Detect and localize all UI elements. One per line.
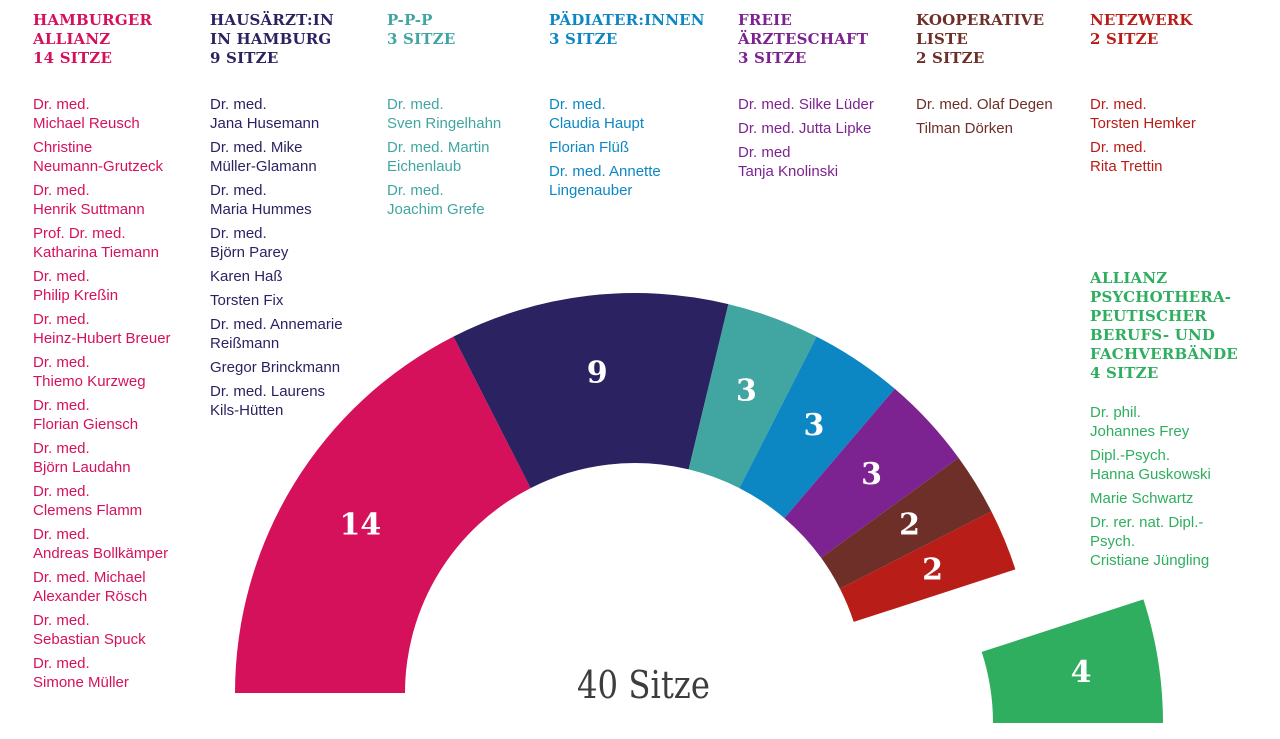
party-member-name: Dr. med. Jutta Lipke	[738, 119, 910, 138]
party-member-list: Dr. med. Michael ReuschChristine Neumann…	[33, 95, 205, 697]
party-header: PÄDIATER:INNEN 3 SITZE	[549, 11, 721, 49]
party-header: HAUSÄRZT:IN IN HAMBURG 9 SITZE	[210, 11, 382, 68]
chart-segment-3: 3	[739, 337, 894, 518]
chart-segment-7: 4	[982, 599, 1163, 723]
party-column-paediater-innen: PÄDIATER:INNEN 3 SITZE Dr. med. Claudia …	[549, 11, 721, 49]
segment-seat-count: 3	[736, 373, 757, 408]
party-member-name: Dr. med. Maria Hummes	[210, 181, 382, 219]
party-member-name: Dr. med. Sven Ringelhahn	[387, 95, 559, 133]
party-member-name: Dr. rer. nat. Dipl.- Psych. Cristiane Jü…	[1090, 513, 1250, 570]
chart-segment-4: 3	[784, 389, 958, 558]
party-member-name: Dr. med. Björn Parey	[210, 224, 382, 262]
segment-seat-count: 3	[861, 457, 882, 492]
party-member-name: Dr. med. Thiemo Kurzweg	[33, 353, 205, 391]
party-member-list: Dr. med. Claudia HauptFlorian FlüßDr. me…	[549, 95, 721, 205]
chart-segment-6: 2	[840, 511, 1016, 622]
segment-seat-count: 9	[587, 356, 608, 391]
segment-seat-count: 2	[899, 507, 920, 542]
party-member-name: Dr. med. Mike Müller-Glamann	[210, 138, 382, 176]
party-member-name: Dr. med Tanja Knolinski	[738, 143, 910, 181]
party-member-name: Dr. med. Claudia Haupt	[549, 95, 721, 133]
party-member-name: Dr. med. Michael Alexander Rösch	[33, 568, 205, 606]
party-member-name: Dr. med. Florian Giensch	[33, 396, 205, 434]
segment-wedge	[453, 293, 728, 488]
segment-wedge	[982, 599, 1163, 723]
party-member-name: Dr. med. Annette Lingenauber	[549, 162, 721, 200]
party-member-name: Dr. med. Martin Eichenlaub	[387, 138, 559, 176]
party-member-name: Dr. med. Simone Müller	[33, 654, 205, 692]
party-member-name: Christine Neumann-Grutzeck	[33, 138, 205, 176]
party-header: FREIE ÄRZTESCHAFT 3 SITZE	[738, 11, 910, 68]
party-member-list: Dr. med. Sven RingelhahnDr. med. Martin …	[387, 95, 559, 224]
segment-wedge	[689, 304, 817, 488]
party-member-list: Dr. med. Olaf DegenTilman Dörken	[916, 95, 1088, 143]
party-column-kooperative-liste: KOOPERATIVE LISTE 2 SITZE Dr. med. Olaf …	[916, 11, 1088, 68]
party-member-name: Florian Flüß	[549, 138, 721, 157]
party-member-name: Dr. med. Jana Husemann	[210, 95, 382, 133]
party-column-netzwerk: NETZWERK 2 SITZE Dr. med. Torsten Hemker…	[1090, 11, 1250, 49]
chart-segment-2: 3	[689, 304, 817, 488]
party-member-name: Dr. med. Sebastian Spuck	[33, 611, 205, 649]
segment-wedge	[784, 389, 958, 558]
party-header: NETZWERK 2 SITZE	[1090, 11, 1250, 49]
party-member-name: Karen Haß	[210, 267, 382, 286]
party-member-name: Dr. phil. Johannes Frey	[1090, 403, 1250, 441]
party-member-name: Dr. med. Torsten Hemker	[1090, 95, 1250, 133]
party-member-name: Prof. Dr. med. Katharina Tiemann	[33, 224, 205, 262]
party-member-name: Dr. med. Annemarie Reißmann	[210, 315, 382, 353]
seat-distribution-infographic: HAMBURGER ALLIANZ 14 SITZE Dr. med. Mich…	[0, 0, 1280, 739]
chart-segment-1: 9	[453, 293, 728, 488]
party-column-p-p-p: P-P-P 3 SITZE Dr. med. Sven RingelhahnDr…	[387, 11, 559, 49]
party-column-freie-aerzteschaft: FREIE ÄRZTESCHAFT 3 SITZE Dr. med. Silke…	[738, 11, 910, 68]
party-member-name: Dr. med. Clemens Flamm	[33, 482, 205, 520]
party-member-list: Dr. med. Silke LüderDr. med. Jutta Lipke…	[738, 95, 910, 186]
party-member-name: Dr. med. Michael Reusch	[33, 95, 205, 133]
total-seats-label: 40 Sitze	[577, 665, 710, 705]
party-member-name: Dr. med. Olaf Degen	[916, 95, 1088, 114]
chart-segment-5: 2	[821, 458, 991, 589]
party-member-name: Dr. med. Andreas Bollkämper	[33, 525, 205, 563]
segment-seat-count: 3	[803, 408, 824, 443]
party-member-list: Dr. phil. Johannes FreyDipl.-Psych. Hann…	[1090, 403, 1250, 575]
party-member-name: Dr. med. Björn Laudahn	[33, 439, 205, 477]
party-member-name: Dipl.-Psych. Hanna Guskowski	[1090, 446, 1250, 484]
segment-seat-count: 14	[340, 507, 382, 542]
party-member-name: Dr. med. Joachim Grefe	[387, 181, 559, 219]
party-member-list: Dr. med. Jana HusemannDr. med. Mike Müll…	[210, 95, 382, 425]
segment-seat-count: 2	[922, 552, 943, 587]
party-member-name: Gregor Brinckmann	[210, 358, 382, 377]
party-header: ALLIANZ PSYCHOTHERA- PEUTISCHER BERUFS- …	[1090, 269, 1250, 383]
party-member-name: Tilman Dörken	[916, 119, 1088, 138]
party-member-name: Marie Schwartz	[1090, 489, 1250, 508]
party-member-name: Dr. med. Henrik Suttmann	[33, 181, 205, 219]
party-member-name: Dr. med. Laurens Kils-Hütten	[210, 382, 382, 420]
party-column-allianz-psychotherapeutischer-verbaende: ALLIANZ PSYCHOTHERA- PEUTISCHER BERUFS- …	[1090, 269, 1250, 383]
party-column-hamburger-allianz: HAMBURGER ALLIANZ 14 SITZE Dr. med. Mich…	[33, 11, 205, 68]
segment-seat-count: 4	[1071, 655, 1092, 690]
party-member-name: Dr. med. Rita Trettin	[1090, 138, 1250, 176]
party-header: KOOPERATIVE LISTE 2 SITZE	[916, 11, 1088, 68]
segment-wedge	[840, 511, 1016, 622]
party-column-hausaerztin-in-hamburg: HAUSÄRZT:IN IN HAMBURG 9 SITZE Dr. med. …	[210, 11, 382, 68]
party-member-name: Dr. med. Heinz-Hubert Breuer	[33, 310, 205, 348]
segment-wedge	[739, 337, 894, 518]
party-member-name: Dr. med. Philip Kreßin	[33, 267, 205, 305]
party-header: P-P-P 3 SITZE	[387, 11, 559, 49]
party-header: HAMBURGER ALLIANZ 14 SITZE	[33, 11, 205, 68]
party-member-list: Dr. med. Torsten HemkerDr. med. Rita Tre…	[1090, 95, 1250, 181]
party-member-name: Torsten Fix	[210, 291, 382, 310]
party-member-name: Dr. med. Silke Lüder	[738, 95, 910, 114]
segment-wedge	[821, 458, 991, 589]
